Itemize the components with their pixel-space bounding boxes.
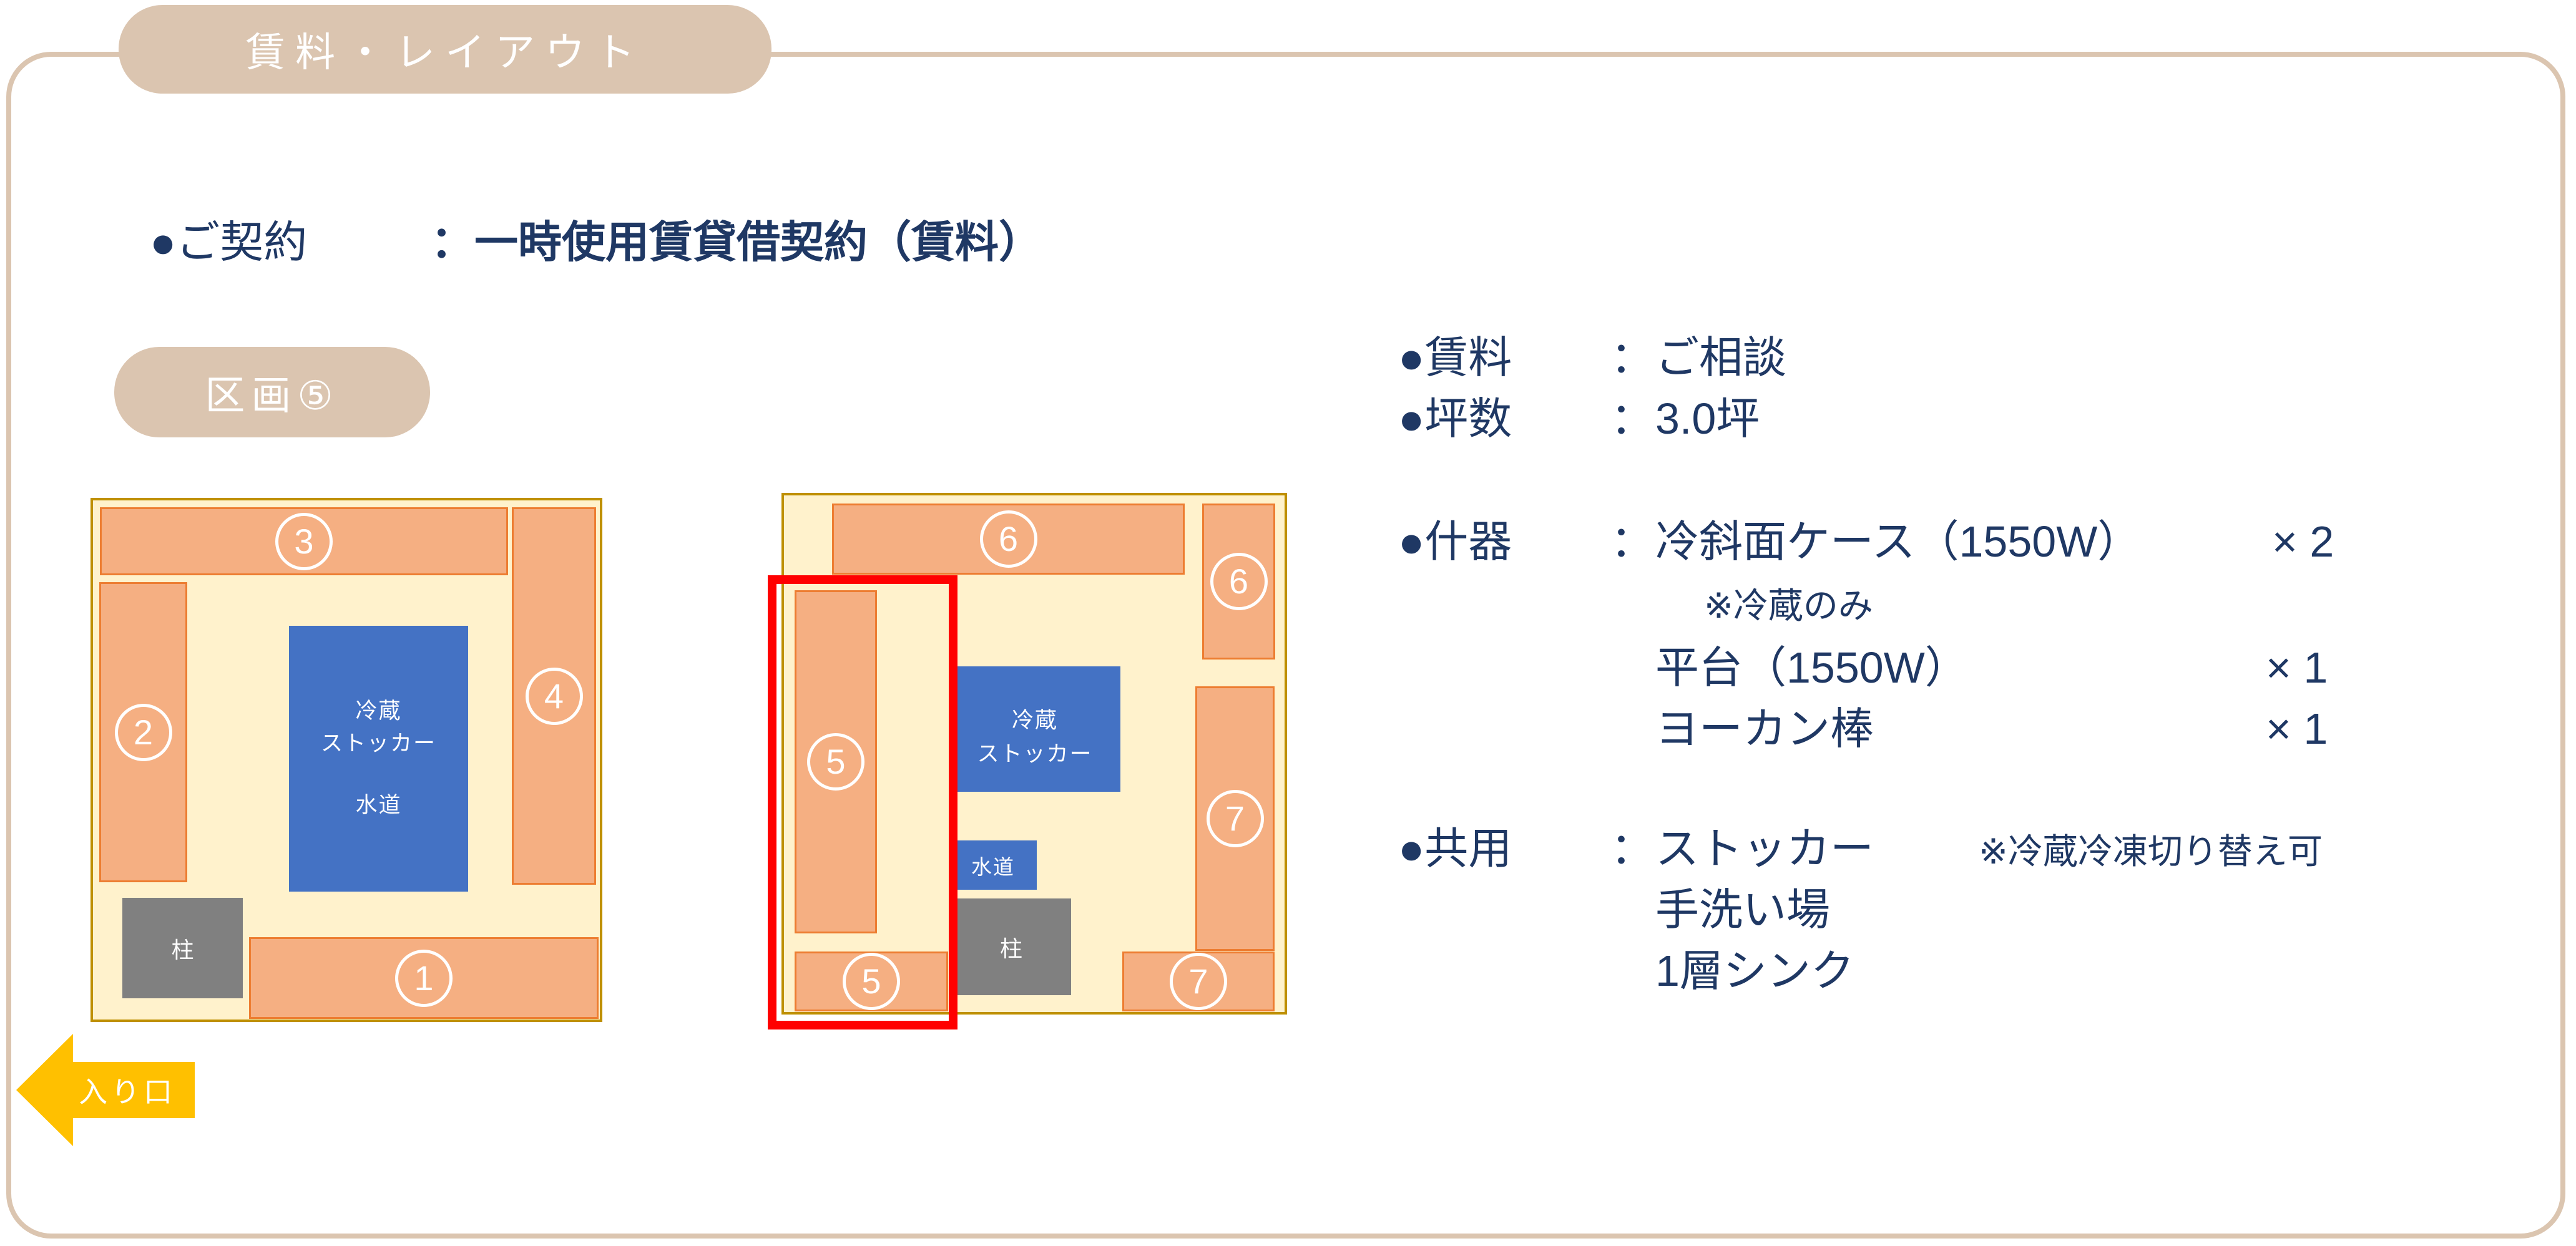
stocker-label-line1: 冷蔵 xyxy=(949,703,1120,734)
shared-item1: ストッカー xyxy=(1655,824,1874,873)
water-label: 水道 xyxy=(289,787,468,819)
fixtures-item3: ヨーカン棒 xyxy=(1655,704,1874,753)
fixtures-note: ※冷蔵のみ xyxy=(1704,586,1873,625)
highlight-rect-section5 xyxy=(768,575,957,1029)
area-bar-1: 1 xyxy=(249,937,599,1019)
contract-label: ●ご契約 xyxy=(150,218,431,266)
area-number-3: 3 xyxy=(275,513,333,570)
info-row-shared: ●共用：ストッカー ※冷蔵冷凍切り替え可 xyxy=(1398,825,1874,873)
section-badge: 区画⑤ xyxy=(114,347,430,437)
pillar-label: 柱 xyxy=(1000,931,1022,963)
area-number-1: 1 xyxy=(395,950,453,1007)
entrance-label: 入り口 xyxy=(16,1069,176,1111)
section-badge-label: 区画⑤ xyxy=(205,364,339,421)
area-bar-6-top: 6 xyxy=(832,504,1185,575)
stocker-label-line2: ストッカー xyxy=(289,726,468,757)
fixtures-item3-qty: × 1 xyxy=(2266,705,2328,753)
fixtures-label: ●什器 xyxy=(1398,518,1610,566)
area-bar-7-side: 7 xyxy=(1195,686,1275,951)
pillar-label: 柱 xyxy=(171,932,193,965)
area-number-7-side: 7 xyxy=(1207,790,1264,847)
water-box: 水道 xyxy=(949,840,1037,890)
area-label: ●坪数 xyxy=(1398,395,1610,443)
area-value: 3.0坪 xyxy=(1655,394,1760,443)
shared-item3: 1層シンク xyxy=(1655,947,1854,995)
area-number-6-top: 6 xyxy=(980,510,1037,568)
area-bar-4: 4 xyxy=(512,507,596,885)
info-row-fixtures-item3: ヨーカン棒 × 1 xyxy=(1655,705,1874,753)
area-bar-2: 2 xyxy=(99,582,187,882)
area-number-2: 2 xyxy=(115,704,172,761)
rent-value: ご相談 xyxy=(1655,333,1786,382)
title-tab: 賃料・レイアウト xyxy=(119,5,771,94)
area-bar-7-bottom: 7 xyxy=(1122,952,1275,1011)
area-number-6-side: 6 xyxy=(1210,553,1268,610)
area-number-4: 4 xyxy=(526,668,583,725)
stocker-box: 冷蔵 ストッカー 水道 xyxy=(289,626,468,892)
area-bar-3: 3 xyxy=(100,507,508,575)
rent-label: ●賃料 xyxy=(1398,334,1610,382)
slide: 賃料・レイアウト ●ご契約：一時使用賃貸借契約（賃料） 区画⑤ 3 2 4 1 … xyxy=(0,0,2576,1246)
fixtures-item1: 冷斜面ケース（1550W） xyxy=(1655,517,2141,566)
fixtures-item2: 平台（1550W） xyxy=(1655,643,1969,692)
fixtures-item1-qty: × 2 xyxy=(2272,518,2334,566)
shared-note: ※冷蔵冷凍切り替え可 xyxy=(1979,832,2323,871)
info-row-area: ●坪数：3.0坪 xyxy=(1398,395,1760,443)
contract-value: 一時使用賃貸借契約（賃料） xyxy=(474,218,1042,266)
area-number-7-bottom: 7 xyxy=(1170,953,1227,1010)
page-title: 賃料・レイアウト xyxy=(245,21,645,78)
info-row-rent: ●賃料：ご相談 xyxy=(1398,334,1786,382)
shared-item2: 手洗い場 xyxy=(1655,886,1830,934)
floorplan-overview: 3 2 4 1 冷蔵 ストッカー 水道 柱 xyxy=(91,498,602,1022)
contract-line: ●ご契約：一時使用賃貸借契約（賃料） xyxy=(150,218,1042,266)
stocker-label-line1: 冷蔵 xyxy=(289,693,468,725)
contract-colon: ： xyxy=(431,218,474,266)
shared-label: ●共用 xyxy=(1398,825,1610,873)
pillar-box: 柱 xyxy=(951,898,1071,995)
info-row-fixtures-item2: 平台（1550W） × 1 xyxy=(1655,644,1969,692)
info-row-fixtures: ●什器：冷斜面ケース（1550W） × 2 xyxy=(1398,518,2141,566)
stocker-label-line2: ストッカー xyxy=(949,736,1120,768)
area-bar-6-side: 6 xyxy=(1202,504,1275,660)
fixtures-item2-qty: × 1 xyxy=(2266,644,2328,692)
water-label: 水道 xyxy=(971,850,1015,880)
pillar-box: 柱 xyxy=(122,898,243,998)
stocker-box: 冷蔵 ストッカー xyxy=(949,666,1120,792)
